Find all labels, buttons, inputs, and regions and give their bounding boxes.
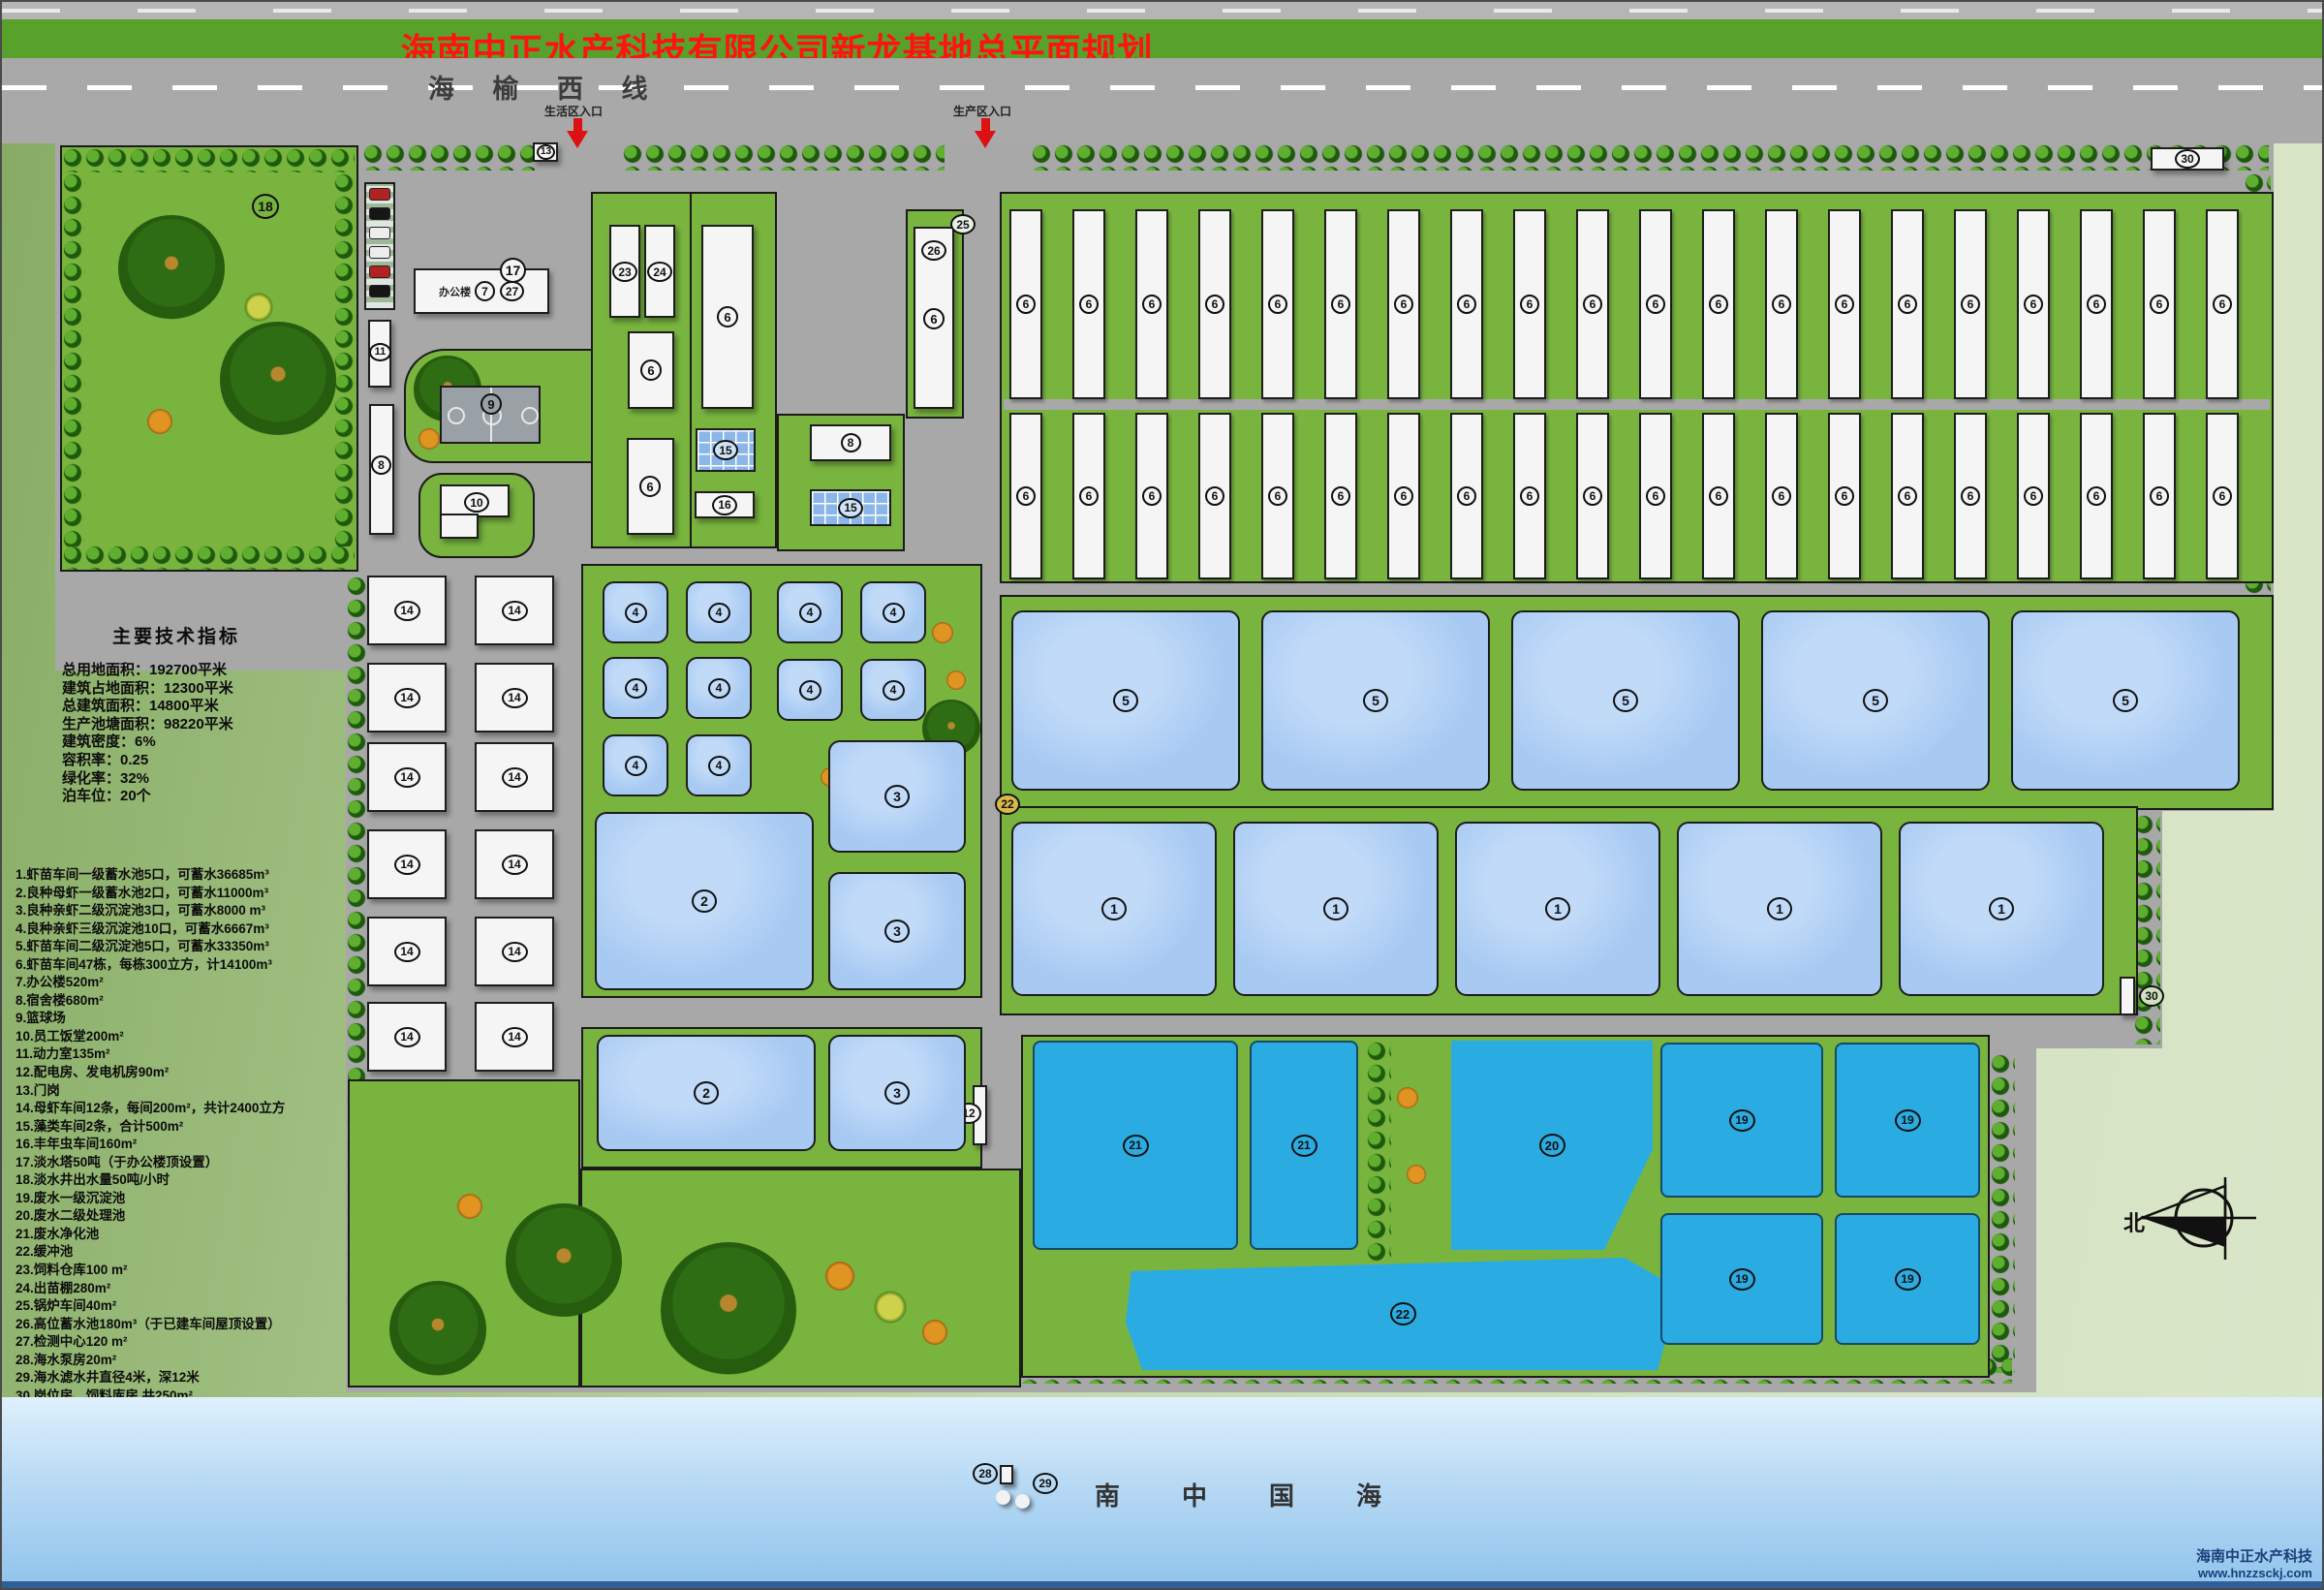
legend-item: 2.良种母虾一级蓄水池2口，可蓄水11000m³ [15, 885, 350, 903]
palm-tree [389, 1281, 486, 1378]
circled-label: 14 [502, 601, 528, 621]
circled-label: 6 [1268, 486, 1287, 506]
circled-label: 4 [799, 680, 821, 701]
workshop-building: 6 [1009, 413, 1042, 579]
circled-label: 19 [1729, 1109, 1755, 1132]
pond: 5 [1511, 610, 1740, 791]
circled-label: 14 [502, 688, 528, 708]
pond: 2 [597, 1035, 816, 1151]
court-key-circle [521, 407, 539, 424]
label-high-tank: 26 [921, 240, 946, 261]
circled-label: 1 [1545, 897, 1570, 920]
mother-shrimp-workshop: 14 [475, 742, 554, 812]
circled-label: 14 [394, 601, 420, 621]
office-building: 办公楼 7 27 [414, 268, 549, 314]
pond: 3 [828, 740, 966, 853]
pond: 4 [603, 581, 668, 643]
treatment-pond: 19 [1835, 1213, 1980, 1345]
workshop-building: 6 [1198, 413, 1231, 579]
workshop-building: 6 [1765, 209, 1798, 399]
mother-shrimp-workshop: 14 [367, 742, 447, 812]
tech-line: 泊车位：20个 [62, 788, 362, 806]
legend-item: 29.海水滤水井直径4米，深12米 [15, 1369, 350, 1387]
legend-item: 9.篮球场 [15, 1010, 350, 1028]
circled-label: 14 [394, 855, 420, 875]
watermark-company: 海南中正水产科技 [2196, 1545, 2312, 1566]
palm-tree [118, 215, 225, 322]
circled-label: 6 [1079, 295, 1099, 314]
workshop-building: 6 [1198, 209, 1231, 399]
road-center-line [2, 85, 2322, 90]
workshop-building: 6 [2206, 209, 2239, 399]
tech-line: 总用地面积：192700平米 [62, 662, 362, 680]
circled-label: 1 [1989, 897, 2014, 920]
pond: 5 [1761, 610, 1990, 791]
legend-item: 27.检测中心120 m² [15, 1333, 350, 1352]
pond: 1 [1455, 822, 1660, 996]
top-road-strip [2, 2, 2322, 19]
legend-item: 12.配电房、发电机房90m² [15, 1064, 350, 1082]
circled-label: 14 [394, 1027, 420, 1047]
legend-item: 21.废水净化池 [15, 1226, 350, 1244]
circled-label: 5 [1363, 689, 1388, 712]
orange-bush [1407, 1165, 1426, 1184]
circled-label: 6 [1709, 486, 1728, 506]
workshop-building: 6 [1387, 413, 1420, 579]
mother-shrimp-workshop: 14 [475, 663, 554, 733]
circled-label: 19 [1729, 1268, 1755, 1291]
site-plan: 海南中正水产科技有限公司新龙基地总平面规划图 海 榆 西 线 生活区入口 生产区… [0, 0, 2324, 1590]
post-house-right [2120, 977, 2135, 1015]
circled-label: 6 [2024, 486, 2043, 506]
pond: 3 [828, 872, 966, 990]
orange-bush [932, 622, 953, 643]
circled-label: 3 [884, 1081, 910, 1105]
circled-label: 5 [2113, 689, 2138, 712]
label-basketball: 9 [480, 393, 502, 415]
label-seedling-shed: 24 [647, 262, 672, 282]
label-post-house: 30 [2175, 149, 2200, 169]
label-inspection: 27 [500, 281, 524, 301]
circled-label: 14 [394, 942, 420, 962]
left-entrance-label: 生活区入口 [544, 103, 603, 119]
circled-label: 6 [1835, 486, 1854, 506]
workshop-building: 6 [1072, 209, 1105, 399]
circled-label: 1 [1767, 897, 1792, 920]
circled-label: 5 [1613, 689, 1638, 712]
tech-line: 绿化率：32% [62, 770, 362, 789]
legend-item: 14.母虾车间12条，每间200m²，共计2400立方 [15, 1100, 350, 1118]
technical-indicators-lines: 总用地面积：192700平米建筑占地面积：12300平米总建筑面积：14800平… [62, 662, 362, 806]
workshop-building: 6 [1135, 209, 1168, 399]
algae-workshop-2: 15 [810, 489, 891, 526]
workshop-building: 6 [1576, 209, 1609, 399]
workshop-building: 6 [1954, 209, 1987, 399]
legend-item: 7.办公楼520m² [15, 974, 350, 992]
circled-label: 6 [1709, 295, 1728, 314]
circled-label: 19 [1895, 1109, 1921, 1132]
legend-item: 18.淡水井出水量50吨/小时 [15, 1171, 350, 1190]
circled-label: 14 [394, 688, 420, 708]
circled-label: 1 [1323, 897, 1348, 920]
legend-item: 28.海水泵房20m² [15, 1352, 350, 1370]
circled-label: 4 [625, 603, 647, 623]
workshop-building: 6 [1450, 209, 1483, 399]
circled-label: 14 [502, 767, 528, 788]
workshop-building: 6 [1702, 413, 1735, 579]
watermark: 海南中正水产科技 www.hnzzsckj.com [2196, 1545, 2312, 1580]
tree-row [362, 143, 535, 171]
yellow-bush [874, 1291, 907, 1324]
label-sea-pump: 28 [973, 1463, 998, 1484]
label-filter-well: 29 [1033, 1473, 1058, 1494]
circled-label: 6 [1079, 486, 1099, 506]
tech-line: 容积率：0.25 [62, 752, 362, 770]
sea-pump-house [1000, 1465, 1013, 1484]
pond: 4 [686, 657, 752, 719]
orange-bush [946, 670, 966, 690]
canteen-building-wing [440, 514, 479, 539]
legend-item: 5.虾苗车间二级沉淀池5口，可蓄水33350m³ [15, 938, 350, 956]
circled-label: 6 [1205, 295, 1224, 314]
label-brine-shrimp: 16 [712, 495, 737, 515]
workshop-building: 6 [1261, 413, 1294, 579]
label-boiler: 25 [950, 214, 976, 234]
label-water-tower: 17 [500, 258, 526, 283]
mother-shrimp-workshop: 14 [475, 917, 554, 986]
treatment-pond: 19 [1660, 1213, 1823, 1345]
pond: 4 [777, 581, 843, 643]
workshop-building: 6 [2017, 413, 2050, 579]
legend-item: 20.废水二级处理池 [15, 1207, 350, 1226]
filter-well [996, 1490, 1010, 1505]
workshop-building: 6 [2080, 209, 2113, 399]
workshop-building: 6 [2143, 413, 2176, 579]
right-entrance-arrow [975, 131, 996, 159]
label-workshop: 6 [923, 308, 945, 329]
mother-shrimp-workshop: 14 [367, 829, 447, 899]
forest-tree-row-top [62, 147, 355, 172]
pond: 4 [860, 659, 926, 721]
circled-label: 6 [1772, 295, 1791, 314]
tree-row [1031, 143, 2269, 171]
parked-car [369, 285, 390, 297]
workshop-building: 6 [1450, 413, 1483, 579]
parked-car [369, 188, 390, 201]
parked-car [369, 265, 390, 278]
label-fresh-well: 18 [252, 194, 279, 219]
circled-label: 6 [2213, 295, 2232, 314]
circled-label: 5 [1113, 689, 1138, 712]
algae-workshop: 15 [696, 428, 756, 472]
legend-item: 8.宿舍楼680m² [15, 992, 350, 1011]
circled-label: 6 [1898, 295, 1917, 314]
legend-item: 23.饲料仓库100 m² [15, 1262, 350, 1280]
tech-line: 生产池塘面积：98220平米 [62, 716, 362, 734]
legend-item: 6.虾苗车间47栋，每栋300立方，计14100m³ [15, 956, 350, 975]
circled-label: 6 [1457, 295, 1476, 314]
circled-label: 14 [502, 942, 528, 962]
pond: 4 [860, 581, 926, 643]
pond: 4 [603, 657, 668, 719]
mother-shrimp-workshop: 14 [367, 663, 447, 733]
legend-item: 16.丰年虫车间160m² [15, 1136, 350, 1154]
mother-shrimp-workshop: 14 [367, 1002, 447, 1072]
workshop-building: 6 [2143, 209, 2176, 399]
circled-label: 6 [1898, 486, 1917, 506]
workshop-building: 6 [1639, 413, 1672, 579]
circled-label: 19 [1895, 1268, 1921, 1291]
label-canteen: 10 [464, 492, 489, 513]
technical-indicators-title: 主要技术指标 [112, 622, 362, 648]
circled-label: 6 [1331, 295, 1350, 314]
workshop-building: 6 [1072, 413, 1105, 579]
treatment-pond: 19 [1660, 1043, 1823, 1198]
right-entrance-label: 生产区入口 [953, 103, 1011, 119]
label-dorm2: 8 [841, 433, 861, 452]
workshop-building: 6 [1324, 413, 1357, 579]
mother-shrimp-workshop: 14 [475, 1002, 554, 1072]
forest-tree-row-bottom [62, 545, 355, 570]
circled-label: 6 [1835, 295, 1854, 314]
workshop-building: 6 [1765, 413, 1798, 579]
compass-north-label: 北 [2123, 1206, 2145, 1237]
circled-label: 6 [1772, 486, 1791, 506]
parked-car [369, 207, 390, 220]
circled-label: 1 [1101, 897, 1127, 920]
circled-label: 6 [2213, 486, 2232, 506]
circled-label: 6 [1520, 295, 1539, 314]
circled-label: 3 [884, 785, 910, 808]
label-algae2: 15 [838, 498, 863, 518]
workshop-building: 6 [1891, 413, 1924, 579]
circled-label: 6 [1394, 295, 1413, 314]
workshop-building: 6 [1324, 209, 1357, 399]
circled-label: 4 [625, 678, 647, 699]
label-gate: 13 [537, 144, 555, 160]
circled-label: 6 [1961, 295, 1980, 314]
circled-label: 6 [1583, 295, 1602, 314]
circled-label: 6 [1646, 486, 1665, 506]
pond-22: 22 [1126, 1258, 1680, 1370]
sea-floor-strip [2, 1581, 2322, 1590]
technical-indicators: 主要技术指标 总用地面积：192700平米建筑占地面积：12300平米总建筑面积… [62, 622, 362, 806]
workshop-field-road [1004, 399, 2270, 410]
label-workshop: 6 [639, 476, 661, 497]
pond: 1 [1233, 822, 1439, 996]
pond: 5 [2011, 610, 2240, 791]
orange-bush [1397, 1087, 1418, 1108]
legend-item: 11.动力室135m² [15, 1045, 350, 1064]
workshop-building: 6 [1702, 209, 1735, 399]
legend: 1.虾苗车间一级蓄水池5口，可蓄水36685m³2.良种母虾一级蓄水池2口，可蓄… [15, 866, 350, 1405]
treatment-pond: 21 [1250, 1041, 1358, 1250]
orange-bush [922, 1320, 947, 1345]
tech-line: 总建筑面积：14800平米 [62, 698, 362, 716]
forest-tree-col-left [62, 172, 85, 546]
circled-label: 21 [1291, 1135, 1317, 1157]
tech-line: 建筑密度：6% [62, 733, 362, 752]
workshop-building: 6 [1828, 413, 1861, 579]
label-feed-store: 23 [612, 262, 637, 282]
orange-bush [457, 1194, 482, 1219]
orange-bush [825, 1262, 854, 1291]
office-building-text: 办公楼 [439, 284, 471, 299]
circled-label: 6 [1142, 295, 1162, 314]
legend-item: 1.虾苗车间一级蓄水池5口，可蓄水36685m³ [15, 866, 350, 885]
label-pond20: 20 [1539, 1134, 1565, 1157]
legend-item: 26.高位蓄水池180m³（于已建车间屋顶设置） [15, 1316, 350, 1334]
workshop-building: 6 [1135, 413, 1168, 579]
road-name: 海 榆 西 线 [428, 68, 664, 106]
tree-row [622, 143, 945, 171]
dorm-building-2: 8 [810, 424, 891, 461]
circled-label: 3 [884, 920, 910, 943]
tree-col [1366, 1041, 1391, 1263]
pond: 1 [1899, 822, 2104, 996]
label-algae: 15 [713, 440, 738, 460]
workshop-building: 6 [1828, 209, 1861, 399]
circled-label: 2 [692, 889, 717, 913]
circled-label: 6 [2150, 295, 2169, 314]
workshop-building: 6 [2206, 413, 2239, 579]
circled-label: 4 [708, 756, 730, 776]
forest-tree-col-right [333, 172, 356, 546]
watermark-url: www.hnzzsckj.com [2196, 1566, 2312, 1580]
pond: 4 [777, 659, 843, 721]
yellow-bush [244, 293, 273, 322]
workshop-building: 6 [1639, 209, 1672, 399]
circled-label: 6 [1142, 486, 1162, 506]
circled-label: 21 [1123, 1135, 1149, 1157]
workshop-building: 6 [1891, 209, 1924, 399]
pond: 4 [603, 734, 668, 796]
label-workshop: 6 [717, 306, 738, 327]
tech-line: 建筑占地面积：12300平米 [62, 680, 362, 699]
label-dorm: 8 [371, 455, 391, 475]
legend-item: 3.良种亲虾二级沉淀池3口，可蓄水8000 m³ [15, 902, 350, 920]
circled-label: 4 [883, 680, 905, 701]
court-key-circle [448, 407, 465, 424]
circled-label: 6 [1583, 486, 1602, 506]
workshop-building: 6 [1387, 209, 1420, 399]
treatment-pond: 19 [1835, 1043, 1980, 1198]
circled-label: 6 [1961, 486, 1980, 506]
circled-label: 6 [2087, 486, 2106, 506]
post-house-top: 30 [2151, 147, 2224, 171]
right-entrance-arrow-stem [981, 118, 990, 131]
circled-label: 14 [394, 767, 420, 788]
label-workshop: 6 [640, 359, 662, 381]
palm-tree [661, 1242, 796, 1378]
workshop-building: 6 [1513, 209, 1546, 399]
garden-bottom [580, 1169, 1021, 1387]
legend-item: 17.淡水塔50吨（于办公楼顶设置） [15, 1154, 350, 1172]
treatment-pond: 21 [1033, 1041, 1238, 1250]
circled-label: 6 [2087, 295, 2106, 314]
legend-item: 10.员工饭堂200m² [15, 1028, 350, 1046]
circled-label: 6 [1331, 486, 1350, 506]
palm-tree [220, 322, 336, 438]
circled-label: 6 [1268, 295, 1287, 314]
label-power: 11 [369, 343, 391, 361]
palm-tree [506, 1203, 622, 1320]
circled-label: 14 [502, 1027, 528, 1047]
workshop-building: 6 [2017, 209, 2050, 399]
pond: 1 [1011, 822, 1217, 996]
pond: 3 [828, 1035, 966, 1151]
workshop-building: 6 [1009, 209, 1042, 399]
circled-label: 6 [1520, 486, 1539, 506]
circled-label: 6 [1646, 295, 1665, 314]
label-post-house-right: 30 [2139, 985, 2164, 1007]
parked-car [369, 227, 390, 239]
legend-item: 13.门岗 [15, 1082, 350, 1101]
pond: 4 [686, 734, 752, 796]
label-pond22: 22 [1390, 1302, 1416, 1325]
workshop-building: 6 [1576, 413, 1609, 579]
sea-name: 南中国海 [1095, 1477, 1443, 1512]
filter-well [1015, 1494, 1030, 1509]
label-buffer-small: 22 [995, 794, 1020, 815]
mother-shrimp-workshop: 14 [367, 917, 447, 986]
circled-label: 4 [625, 756, 647, 776]
workshop-building: 6 [1261, 209, 1294, 399]
orange-bush [147, 409, 172, 434]
label-office: 7 [475, 281, 495, 301]
circled-label: 6 [2150, 486, 2169, 506]
circled-label: 2 [694, 1081, 719, 1105]
brine-shrimp-workshop: 16 [695, 491, 755, 518]
circled-label: 6 [1016, 486, 1036, 506]
legend-item: 25.锅炉车间40m² [15, 1297, 350, 1316]
left-entrance-arrow-stem [573, 118, 582, 131]
pond: 5 [1261, 610, 1490, 791]
circled-label: 14 [502, 855, 528, 875]
circled-label: 4 [708, 603, 730, 623]
circled-label: 6 [1457, 486, 1476, 506]
tree-col [1990, 1053, 2015, 1373]
circled-label: 4 [708, 678, 730, 699]
legend-item: 22.缓冲池 [15, 1243, 350, 1262]
pond: 4 [686, 581, 752, 643]
highway [2, 58, 2322, 143]
pond: 2 [595, 812, 814, 990]
workshop-building: 6 [1513, 413, 1546, 579]
pond: 5 [1011, 610, 1240, 791]
left-entrance-arrow [567, 131, 588, 159]
workshop-building: 6 [2080, 413, 2113, 579]
mother-shrimp-workshop: 14 [475, 576, 554, 645]
circled-label: 4 [799, 603, 821, 623]
legend-item: 24.出苗棚280m² [15, 1280, 350, 1298]
workshop-building: 6 [1954, 413, 1987, 579]
parked-car [369, 246, 390, 259]
orange-bush [418, 428, 440, 450]
mother-shrimp-workshop: 14 [475, 829, 554, 899]
circled-label: 4 [883, 603, 905, 623]
circled-label: 6 [1394, 486, 1413, 506]
legend-item: 15.藻类车间2条，合计500m² [15, 1118, 350, 1137]
circled-label: 6 [2024, 295, 2043, 314]
legend-item: 4.良种亲虾三级沉淀池10口，可蓄水6667m³ [15, 920, 350, 939]
legend-item: 19.废水一级沉淀池 [15, 1190, 350, 1208]
pond: 1 [1677, 822, 1882, 996]
circled-label: 6 [1016, 295, 1036, 314]
mother-shrimp-workshop: 14 [367, 576, 447, 645]
circled-label: 6 [1205, 486, 1224, 506]
circled-label: 5 [1863, 689, 1888, 712]
